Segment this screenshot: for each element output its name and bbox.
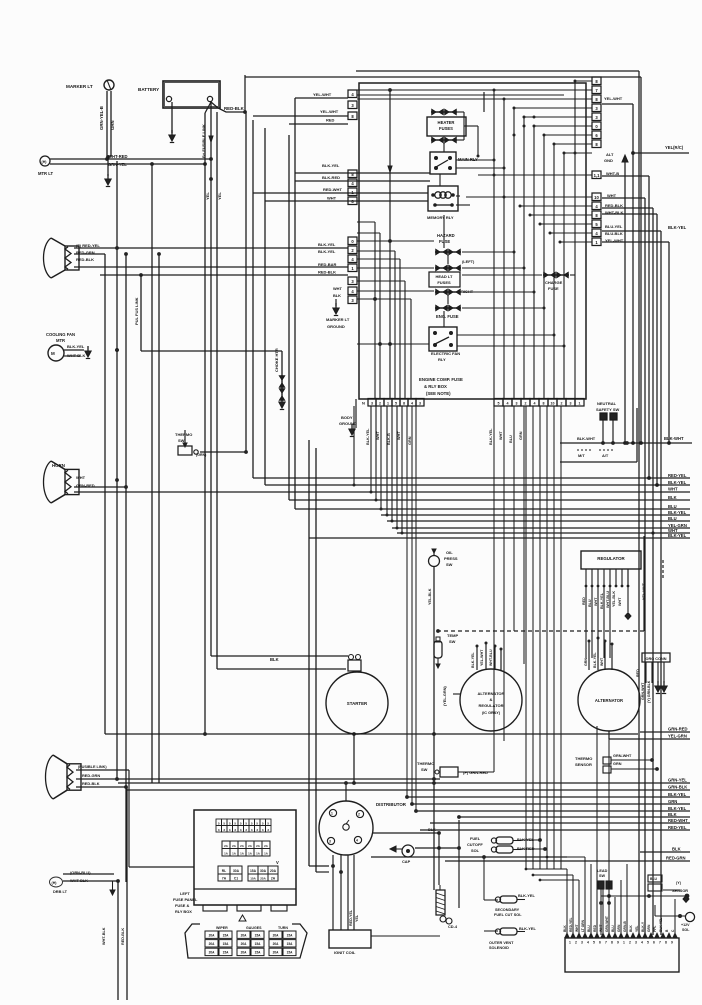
svg-text:M: M xyxy=(51,351,55,356)
svg-text:(YEL-GRN): (YEL-GRN) xyxy=(443,686,447,706)
svg-text:BLK-B: BLK-B xyxy=(387,433,391,445)
svg-text:WHT: WHT xyxy=(668,487,678,492)
svg-text:BLK: BLK xyxy=(270,657,279,662)
svg-text:MEMORY RLY: MEMORY RLY xyxy=(427,215,454,220)
svg-text:RED: RED xyxy=(593,924,597,932)
svg-text:CHOKE HTR: CHOKE HTR xyxy=(274,348,279,372)
svg-text:BLU-YEL: BLU-YEL xyxy=(605,224,623,229)
svg-text:20A: 20A xyxy=(273,951,280,955)
svg-text:BLK: BLK xyxy=(668,812,677,817)
svg-text:BLK-YEL: BLK-YEL xyxy=(471,652,475,668)
svg-text:2: 2 xyxy=(525,402,527,406)
svg-text:RED-YEL: RED-YEL xyxy=(569,918,573,932)
svg-text:YEL-WHT: YEL-WHT xyxy=(320,109,339,114)
svg-text:WHT: WHT xyxy=(618,597,622,606)
svg-text:7: 7 xyxy=(659,941,661,945)
svg-text:MTR: MTR xyxy=(56,338,65,343)
svg-text:(IC GRAY): (IC GRAY) xyxy=(482,711,501,715)
svg-text:5: 5 xyxy=(498,402,500,406)
svg-text:RED-BLK: RED-BLK xyxy=(76,257,94,262)
svg-text:WHT-B: WHT-B xyxy=(606,171,619,176)
svg-text:RED-GRN: RED-GRN xyxy=(82,773,100,778)
svg-text:WHT-BLU: WHT-BLU xyxy=(489,649,493,666)
svg-text:YEL: YEL xyxy=(635,926,639,932)
svg-text:BLU: BLU xyxy=(668,504,677,509)
svg-text:BLK-YEL: BLK-YEL xyxy=(67,344,85,349)
svg-text:YEL-BLK: YEL-BLK xyxy=(612,591,616,607)
svg-text:GND: GND xyxy=(604,158,613,163)
svg-text:BLK-YEL: BLK-YEL xyxy=(318,242,336,247)
svg-text:2: 2 xyxy=(575,941,577,945)
svg-text:(SEE NOTE): (SEE NOTE) xyxy=(426,391,451,396)
svg-text:GRN-WHT: GRN-WHT xyxy=(613,754,632,758)
svg-text:BLK-YEL: BLK-YEL xyxy=(659,918,663,932)
svg-text:BLU: BLU xyxy=(509,435,513,443)
svg-text:WHT-BLK: WHT-BLK xyxy=(102,927,106,945)
svg-text:RED: RED xyxy=(326,118,335,123)
svg-text:YEL-WHT: YEL-WHT xyxy=(313,92,332,97)
svg-text:BLU-BLK: BLU-BLK xyxy=(605,231,623,236)
svg-text:ORG CONN: ORG CONN xyxy=(646,657,667,661)
svg-text:BLK-YEL: BLK-YEL xyxy=(519,926,536,931)
svg-text:SENSOR: SENSOR xyxy=(575,762,592,767)
svg-text:8: 8 xyxy=(611,941,613,945)
svg-text:BLK: BLK xyxy=(333,293,341,298)
svg-text:BLK-RED: BLK-RED xyxy=(322,175,340,180)
svg-text:HAZARD: HAZARD xyxy=(437,233,455,238)
svg-text:GRN: GRN xyxy=(617,924,621,932)
svg-text:4: 4 xyxy=(587,941,589,945)
svg-text:10: 10 xyxy=(551,402,555,406)
svg-text:WHT: WHT xyxy=(397,431,401,440)
svg-text:ENGINE COMP. FUSE: ENGINE COMP. FUSE xyxy=(419,377,463,382)
svg-text:BATTERY: BATTERY xyxy=(138,87,159,92)
svg-text:WHT: WHT xyxy=(575,924,579,932)
svg-text:RED-YEL: RED-YEL xyxy=(349,909,353,926)
svg-text:SAFETY SW: SAFETY SW xyxy=(596,407,619,412)
svg-text:GRN-WHT: GRN-WHT xyxy=(641,682,645,700)
svg-text:RLY BOX: RLY BOX xyxy=(175,909,192,914)
svg-text:GRN: GRN xyxy=(408,436,412,445)
svg-text:MARKER LT: MARKER LT xyxy=(66,84,93,89)
svg-text:3: 3 xyxy=(419,402,421,406)
svg-text:SW: SW xyxy=(599,874,606,878)
svg-text:B+ FUSIBLE LINK: B+ FUSIBLE LINK xyxy=(201,124,206,158)
svg-text:RED-BLK: RED-BLK xyxy=(605,203,623,208)
svg-text:RED-BAR: RED-BAR xyxy=(318,262,337,267)
svg-text:YEL(R/C): YEL(R/C) xyxy=(665,145,684,150)
svg-text:1: 1 xyxy=(579,402,581,406)
svg-text:YEL-WHT: YEL-WHT xyxy=(480,649,484,666)
svg-text:DISTRIBUTOR: DISTRIBUTOR xyxy=(376,802,407,807)
svg-text:RED-GRN: RED-GRN xyxy=(666,856,686,861)
svg-text:WHT: WHT xyxy=(327,196,337,201)
svg-text:9: 9 xyxy=(671,941,673,945)
svg-text:SOL: SOL xyxy=(471,848,480,853)
svg-text:MARKER LT: MARKER LT xyxy=(326,317,350,322)
svg-text:BLK-WHT: BLK-WHT xyxy=(664,436,684,441)
svg-text:BLK-YEL: BLK-YEL xyxy=(600,592,604,609)
svg-text:RED: RED xyxy=(582,597,586,605)
svg-text:20A: 20A xyxy=(209,951,216,955)
svg-text:BLK-YEL: BLK-YEL xyxy=(668,480,687,485)
svg-text:BLU: BLU xyxy=(668,516,677,521)
svg-text:(GRN): (GRN) xyxy=(196,453,207,457)
svg-text:GRN-RED: GRN-RED xyxy=(668,727,688,732)
svg-text:15A: 15A xyxy=(287,951,294,955)
svg-text:BLK: BLK xyxy=(563,925,567,932)
svg-text:YEL: YEL xyxy=(217,192,222,200)
svg-text:FUSE &: FUSE & xyxy=(175,903,189,908)
svg-text:GRN-WHT: GRN-WHT xyxy=(605,916,609,932)
svg-text:FUSE: FUSE xyxy=(439,239,450,244)
svg-text:BLK: BLK xyxy=(629,925,633,932)
svg-text:ALTERNATOR: ALTERNATOR xyxy=(595,698,623,703)
svg-text:RED-WHT: RED-WHT xyxy=(323,187,342,192)
svg-text:OUTER VENT: OUTER VENT xyxy=(489,941,514,945)
svg-text:BLU: BLU xyxy=(611,925,615,932)
svg-text:GROUND: GROUND xyxy=(327,324,345,329)
svg-text:THERMO: THERMO xyxy=(175,432,192,437)
svg-text:4: 4 xyxy=(534,402,536,406)
svg-text:15A: 15A xyxy=(255,933,262,937)
svg-text:15A: 15A xyxy=(223,951,230,955)
svg-text:YEL: YEL xyxy=(355,914,359,922)
svg-text:BLK-YEL: BLK-YEL xyxy=(318,249,336,254)
svg-text:20A: 20A xyxy=(273,942,280,946)
svg-text:GRN-YEL: GRN-YEL xyxy=(668,778,687,783)
svg-text:WHT: WHT xyxy=(499,431,503,440)
svg-text:20A: 20A xyxy=(209,933,216,937)
svg-text:HEAD LT: HEAD LT xyxy=(435,274,453,279)
svg-text:(FUSIBLE LINK): (FUSIBLE LINK) xyxy=(78,765,107,769)
svg-text:CUTOFF: CUTOFF xyxy=(467,842,483,847)
svg-text:4: 4 xyxy=(641,941,643,945)
svg-text:7: 7 xyxy=(605,941,607,945)
svg-text:SW: SW xyxy=(421,767,428,772)
svg-text:3: 3 xyxy=(581,941,583,945)
svg-text:GRN: GRN xyxy=(647,924,651,932)
svg-text:20A: 20A xyxy=(273,933,280,937)
svg-text:BLK-YEL: BLK-YEL xyxy=(489,428,493,445)
svg-text:2A: 2A xyxy=(271,877,276,881)
svg-text:CD-4: CD-4 xyxy=(448,924,458,929)
svg-text:REGULATOR: REGULATOR xyxy=(479,703,504,708)
svg-text:10A: 10A xyxy=(250,877,256,881)
svg-text:CAP: CAP xyxy=(402,859,411,864)
svg-text:15A: 15A xyxy=(223,942,230,946)
svg-text:30A: 30A xyxy=(233,869,240,873)
svg-text:COOLING FAN: COOLING FAN xyxy=(46,332,75,337)
svg-text:SOL: SOL xyxy=(682,928,690,932)
svg-text:WIPER: WIPER xyxy=(216,926,228,930)
svg-text:9: 9 xyxy=(617,941,619,945)
svg-text:15A: 15A xyxy=(223,933,230,937)
svg-text:6: 6 xyxy=(599,941,601,945)
svg-text:N: N xyxy=(362,401,365,406)
svg-text:WHT: WHT xyxy=(594,597,598,606)
svg-text:ELECTRIC FAN: ELECTRIC FAN xyxy=(431,351,460,356)
svg-text:BLK-WHT: BLK-WHT xyxy=(577,436,596,441)
svg-text:RED-BLK: RED-BLK xyxy=(82,781,100,786)
svg-text:2: 2 xyxy=(629,941,631,945)
svg-text:YEL-BLK: YEL-BLK xyxy=(428,588,432,605)
svg-text:3: 3 xyxy=(516,402,518,406)
svg-text:BLK-YEL: BLK-YEL xyxy=(322,163,340,168)
svg-text:LEAD: LEAD xyxy=(597,869,608,873)
svg-text:BLU: BLU xyxy=(587,925,591,932)
svg-text:ALT: ALT xyxy=(606,152,614,157)
svg-text:30A: 30A xyxy=(260,869,267,873)
svg-text:BLK-YEL: BLK-YEL xyxy=(593,652,597,668)
svg-text:RED-WHT: RED-WHT xyxy=(668,818,688,823)
svg-text:WHT: WHT xyxy=(333,286,342,291)
svg-text:A/T: A/T xyxy=(602,453,609,458)
svg-text:GRN: GRN xyxy=(584,658,588,666)
svg-text:RED-YEL: RED-YEL xyxy=(668,473,687,478)
svg-text:WHT: WHT xyxy=(76,475,86,480)
svg-text:BLK-Y: BLK-Y xyxy=(641,921,645,932)
svg-text:15A: 15A xyxy=(250,869,257,873)
svg-text:C1: C1 xyxy=(234,877,238,881)
svg-text:&: & xyxy=(490,697,493,702)
svg-text:BLK-YEL: BLK-YEL xyxy=(668,792,687,797)
svg-text:6: 6 xyxy=(653,941,655,945)
svg-text:SOLENOID: SOLENOID xyxy=(489,946,509,950)
svg-text:PUL FUS LINK: PUL FUS LINK xyxy=(134,297,139,325)
svg-text:15A: 15A xyxy=(255,951,262,955)
svg-text:15A: 15A xyxy=(287,933,294,937)
svg-text:BLK-YEL: BLK-YEL xyxy=(518,893,535,898)
svg-text:IGNIT COIL: IGNIT COIL xyxy=(334,950,356,955)
svg-text:(F) RED-YEL: (F) RED-YEL xyxy=(76,243,100,248)
svg-text:LT GRN: LT GRN xyxy=(581,919,585,932)
svg-text:MTR LT: MTR LT xyxy=(38,171,53,176)
svg-text:(H): (H) xyxy=(52,881,58,885)
svg-text:GRN: GRN xyxy=(110,120,115,130)
svg-text:OIL: OIL xyxy=(446,550,453,555)
svg-text:REGULATOR: REGULATOR xyxy=(597,556,625,561)
svg-text:FUEL CUT SOL: FUEL CUT SOL xyxy=(494,913,522,917)
svg-text:PRESS: PRESS xyxy=(444,556,458,561)
svg-text:M/T: M/T xyxy=(578,453,585,458)
svg-text:RED-YEL: RED-YEL xyxy=(668,825,687,830)
svg-text:TEMP: TEMP xyxy=(447,633,458,638)
svg-text:GRN: GRN xyxy=(668,799,677,804)
svg-text:GRN-YEL-B: GRN-YEL-B xyxy=(99,106,104,130)
svg-text:THERMO: THERMO xyxy=(575,756,592,761)
svg-text:2: 2 xyxy=(358,813,360,817)
svg-text:4: 4 xyxy=(411,402,413,406)
svg-text:BLK: BLK xyxy=(668,495,677,500)
svg-text:10: 10 xyxy=(594,195,599,200)
svg-text:WHT: WHT xyxy=(376,431,380,440)
svg-text:ALTERNATOR: ALTERNATOR xyxy=(478,691,505,696)
svg-text:4: 4 xyxy=(356,839,358,843)
svg-text:BLK-YEL: BLK-YEL xyxy=(668,225,687,230)
svg-text:15A: 15A xyxy=(255,942,262,946)
svg-text:HEATER: HEATER xyxy=(438,120,455,125)
svg-text:5: 5 xyxy=(647,941,649,945)
svg-text:20A: 20A xyxy=(241,942,248,946)
svg-text:5: 5 xyxy=(395,402,397,406)
svg-text:WHT: WHT xyxy=(599,924,603,932)
svg-text:WHT: WHT xyxy=(607,193,617,198)
svg-text:20A: 20A xyxy=(270,869,277,873)
svg-text:1: 1 xyxy=(331,812,333,816)
svg-text:SECONDARY: SECONDARY xyxy=(495,908,520,912)
svg-text:3: 3 xyxy=(371,402,373,406)
svg-text:NEUTRAL: NEUTRAL xyxy=(597,401,617,406)
svg-text:RL: RL xyxy=(222,869,226,873)
svg-text:(H): (H) xyxy=(42,160,48,164)
svg-text:1,1: 1,1 xyxy=(594,173,600,178)
svg-text:YEL-GRN: YEL-GRN xyxy=(668,734,687,739)
svg-text:RLY: RLY xyxy=(438,357,446,362)
svg-text:3: 3 xyxy=(570,402,572,406)
svg-text:BLK: BLK xyxy=(672,847,681,852)
svg-text:FUSE PANEL: FUSE PANEL xyxy=(173,897,198,902)
svg-text:GRN: GRN xyxy=(613,762,622,766)
svg-text:(LEFT): (LEFT) xyxy=(462,259,475,264)
svg-text:20A: 20A xyxy=(209,942,216,946)
svg-text:SW: SW xyxy=(449,639,456,644)
svg-text:8: 8 xyxy=(665,941,667,945)
svg-text:3: 3 xyxy=(635,941,637,945)
svg-text:PPL: PPL xyxy=(653,926,657,932)
svg-text:SW: SW xyxy=(178,438,185,443)
svg-text:THERMO: THERMO xyxy=(417,761,434,766)
svg-text:STARTER: STARTER xyxy=(347,701,368,706)
svg-text:+12V: +12V xyxy=(681,923,690,927)
svg-text:WHT: WHT xyxy=(600,657,604,666)
svg-text:(Y) GRN-BLK: (Y) GRN-BLK xyxy=(647,680,651,703)
svg-text:GRN: GRN xyxy=(519,431,523,440)
svg-text:SW: SW xyxy=(446,562,453,567)
svg-text:RED-BLK: RED-BLK xyxy=(121,928,125,945)
svg-text:LEFT: LEFT xyxy=(180,891,190,896)
svg-text:25A: 25A xyxy=(260,877,266,881)
svg-text:BLK-YEL: BLK-YEL xyxy=(366,428,370,445)
svg-text:YEL: YEL xyxy=(205,192,210,200)
svg-text:1: 1 xyxy=(623,941,625,945)
svg-text:ENG. FUSE: ENG. FUSE xyxy=(436,314,459,319)
svg-text:WHT-BLU: WHT-BLU xyxy=(606,591,610,608)
svg-text:BLU: BLU xyxy=(650,877,658,881)
svg-text:GRN-B: GRN-B xyxy=(623,921,627,932)
svg-text:FUSES: FUSES xyxy=(437,280,451,285)
svg-text:8: 8 xyxy=(403,402,405,406)
svg-text:WHT-RED: WHT-RED xyxy=(108,154,128,159)
svg-text:BLK-YEL: BLK-YEL xyxy=(668,510,687,515)
svg-text:15A: 15A xyxy=(287,942,294,946)
svg-text:& RLY BOX: & RLY BOX xyxy=(424,384,447,389)
svg-text:20A: 20A xyxy=(241,933,248,937)
svg-text:RED-BLK: RED-BLK xyxy=(318,270,336,275)
svg-text:BLU: BLU xyxy=(588,599,592,607)
svg-text:DRB LT: DRB LT xyxy=(53,889,68,894)
svg-text:FUSES: FUSES xyxy=(439,126,453,131)
svg-text:1: 1 xyxy=(387,402,389,406)
svg-text:BLK-YEL: BLK-YEL xyxy=(668,806,687,811)
svg-text:YEL-WHT: YEL-WHT xyxy=(604,96,623,101)
svg-text:BLK-YEL: BLK-YEL xyxy=(668,533,687,538)
svg-text:1: 1 xyxy=(569,941,571,945)
svg-text:RED-BLK: RED-BLK xyxy=(224,106,245,111)
svg-text:RED: RED xyxy=(636,669,640,677)
svg-text:FUEL: FUEL xyxy=(470,836,481,841)
svg-text:3: 3 xyxy=(329,840,331,844)
svg-text:TURN: TURN xyxy=(278,926,288,930)
svg-text:GAUGES: GAUGES xyxy=(246,926,262,930)
svg-text:(Y): (Y) xyxy=(676,881,682,885)
svg-text:4: 4 xyxy=(507,402,509,406)
svg-text:2: 2 xyxy=(379,402,381,406)
svg-text:7A: 7A xyxy=(222,877,227,881)
svg-text:8: 8 xyxy=(543,402,545,406)
svg-text:BODY: BODY xyxy=(341,415,353,420)
svg-text:5: 5 xyxy=(593,941,595,945)
svg-text:20A: 20A xyxy=(241,951,248,955)
svg-text:2: 2 xyxy=(561,402,563,406)
svg-text:V: V xyxy=(276,860,279,865)
svg-text:GRN-BLK: GRN-BLK xyxy=(668,785,687,790)
